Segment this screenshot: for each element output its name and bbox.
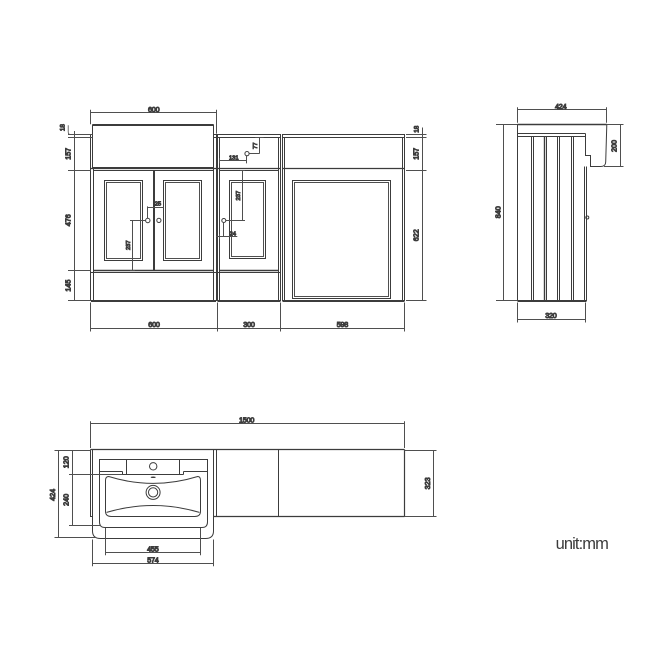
- svg-text:840: 840: [493, 206, 502, 218]
- svg-text:131: 131: [229, 156, 239, 162]
- svg-text:145: 145: [63, 280, 72, 292]
- svg-text:18: 18: [59, 124, 66, 132]
- svg-text:240: 240: [62, 494, 71, 506]
- svg-text:77: 77: [253, 143, 259, 149]
- svg-text:323: 323: [423, 477, 432, 489]
- svg-text:18: 18: [413, 125, 420, 133]
- svg-text:157: 157: [411, 148, 420, 160]
- svg-text:600: 600: [148, 105, 160, 114]
- svg-text:622: 622: [411, 229, 420, 241]
- svg-text:320: 320: [545, 311, 557, 320]
- svg-text:424: 424: [555, 102, 567, 111]
- svg-text:598: 598: [337, 320, 349, 329]
- svg-text:476: 476: [63, 214, 72, 226]
- svg-text:424: 424: [48, 489, 57, 501]
- svg-text:157: 157: [63, 148, 72, 160]
- svg-text:25: 25: [155, 202, 161, 208]
- svg-text:200: 200: [610, 140, 619, 152]
- svg-text:574: 574: [147, 556, 159, 565]
- svg-text:120: 120: [62, 456, 71, 468]
- svg-text:1500: 1500: [239, 416, 254, 425]
- svg-text:300: 300: [243, 320, 255, 329]
- svg-text:unit:mm: unit:mm: [556, 535, 609, 553]
- svg-text:24: 24: [229, 231, 236, 237]
- svg-text:600: 600: [148, 320, 160, 329]
- svg-text:455: 455: [147, 545, 159, 554]
- svg-text:237: 237: [126, 240, 132, 250]
- svg-text:237: 237: [236, 191, 242, 201]
